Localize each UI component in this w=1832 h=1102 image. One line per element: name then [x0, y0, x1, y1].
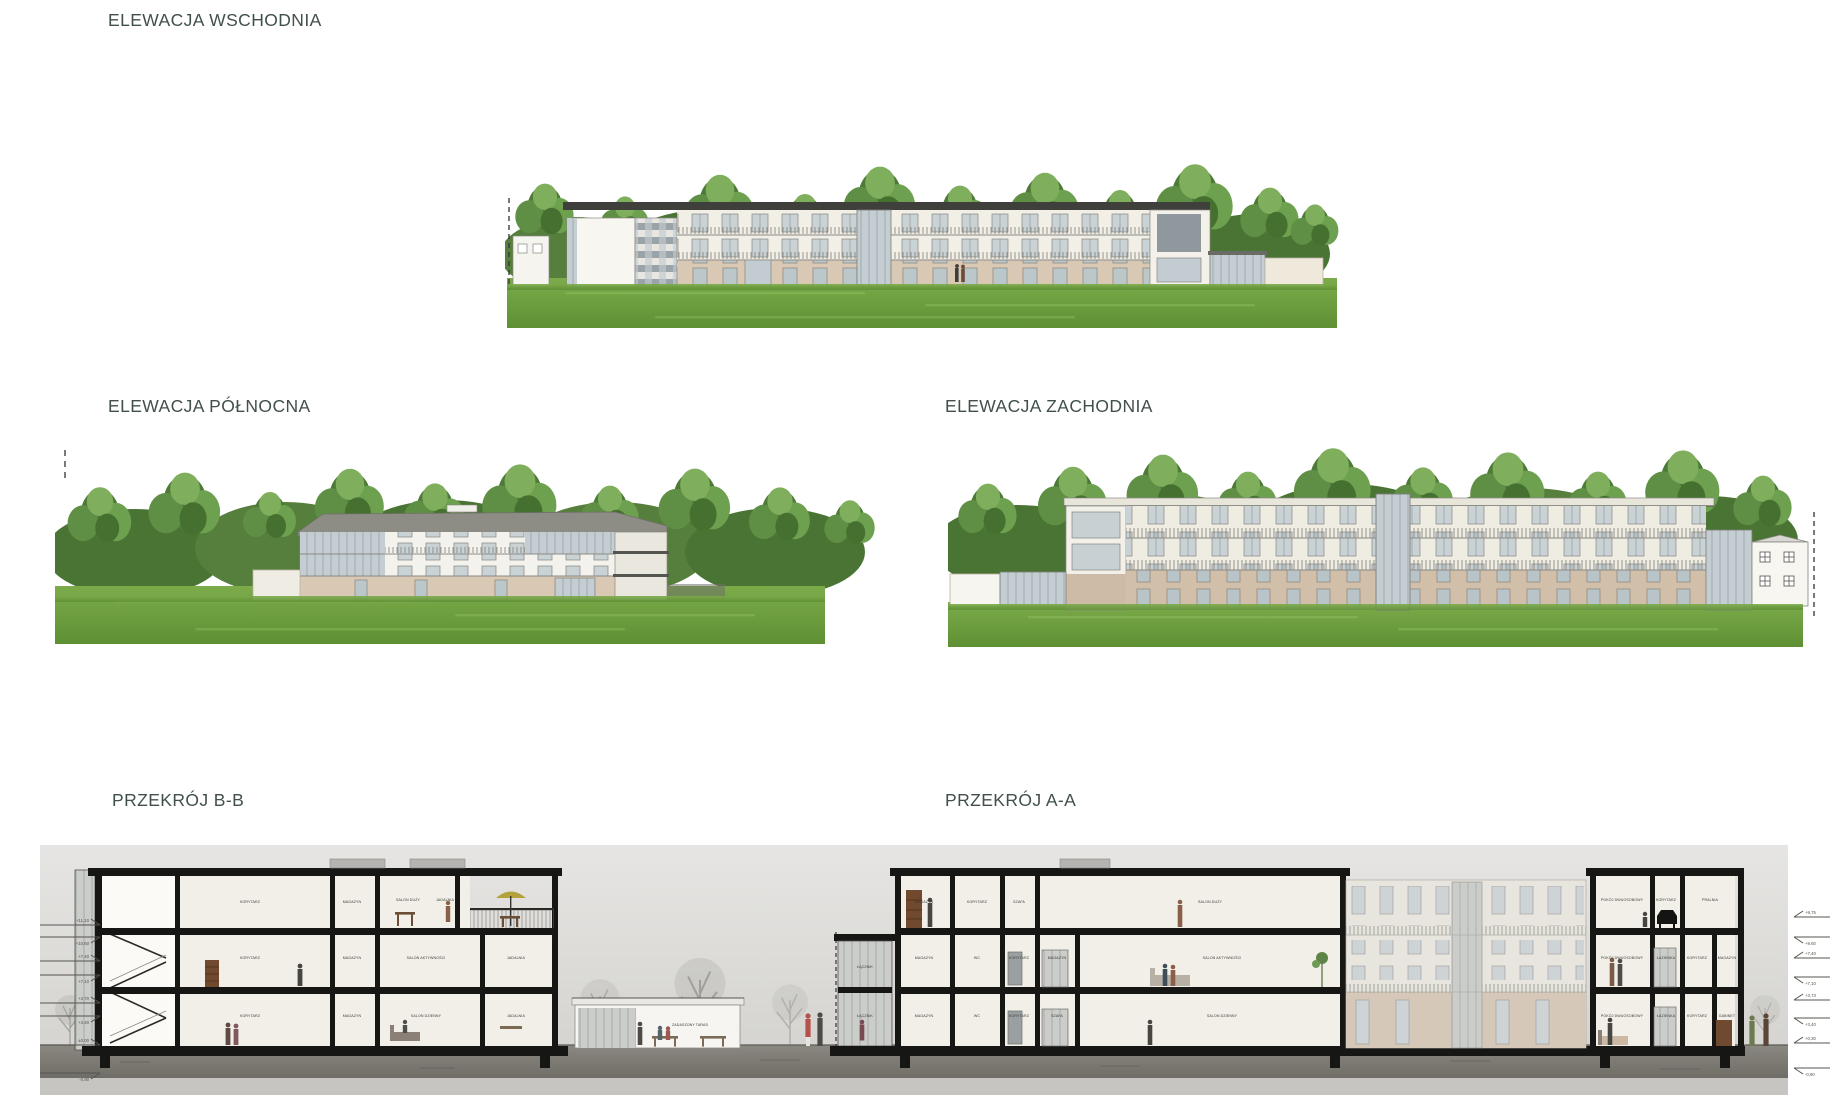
room-label: PRALNIA [1702, 898, 1719, 902]
room-label: SALON DUŻY [396, 897, 420, 902]
level-value: -0,90 [79, 1077, 89, 1082]
room-label: SALON DZIENNY [411, 1014, 442, 1018]
level-markers-right: +9,75 +9,60 +7,40 +7,10 +3,73 +3,40 +0,3… [1794, 910, 1830, 1077]
room-label: WC [974, 956, 980, 960]
room-label: KORYTARZ [1687, 956, 1708, 960]
room-label: KORYTARZ [240, 1014, 261, 1018]
room-label: KORYTARZ [1656, 898, 1677, 902]
room-label: SZAFA [1013, 900, 1025, 904]
room-label: MAGAZYN [915, 900, 934, 904]
level-value: +3,73 [1805, 993, 1816, 998]
room-label: ŁAZIENKA [1657, 1014, 1676, 1018]
building-west [948, 494, 1814, 616]
title-west-elevation: ELEWACJA ZACHODNIA [945, 396, 1153, 417]
title-east-elevation: ELEWACJA WSCHODNIA [108, 10, 322, 31]
glass-stair-tower [857, 210, 891, 286]
room-label: MAGAZYN [1718, 956, 1737, 960]
room-label: SALON AKTYWNOŚCI [1203, 955, 1242, 960]
sections-drawing: KORYTARZ MAGAZYN SALON DUŻY JADALNIA KOR… [0, 840, 1832, 1102]
connector-wing: ŁĄCZNIK ŁĄCZNIK [834, 934, 898, 1046]
presentation-board: ELEWACJA WSCHODNIA ELEWACJA PÓŁNOCNA ELE… [0, 0, 1832, 1102]
room-label: JADALNIA [507, 956, 525, 960]
room-label: GABINET [1719, 1014, 1736, 1018]
room-label: ŁAZIENKA [1657, 956, 1676, 960]
mosaic-glass-panel [635, 218, 677, 286]
section-aa: ŁĄCZNIK ŁĄCZNIK [805, 859, 1768, 1068]
room-label: MAGAZYN [343, 956, 362, 960]
level-value: +9,60 [1805, 941, 1816, 946]
level-value: +7,40 [1805, 951, 1816, 956]
level-value: +7,10 [1805, 981, 1816, 986]
title-section-aa: PRZEKRÓJ A-A [945, 790, 1076, 811]
room-label: ŁĄCZNIK [857, 965, 873, 969]
room-label: POKÓJ DWUOSOBOWY [1601, 955, 1644, 960]
level-value: +9,75 [1805, 910, 1816, 915]
room-label: KORYTARZ [1009, 956, 1030, 960]
room-label: KORYTARZ [1009, 1014, 1030, 1018]
north-elevation-drawing [55, 448, 890, 648]
room-label: MAGAZYN [343, 900, 362, 904]
room-label: POKÓJ DWUOSOBOWY [1601, 897, 1644, 902]
level-value: +10,60 [76, 941, 90, 946]
room-label: MAGAZYN [915, 1014, 934, 1018]
east-elevation-drawing [505, 160, 1340, 332]
room-label: KORYTARZ [240, 956, 261, 960]
annex-pavilion: ZADASZONY TARAS [572, 998, 744, 1048]
title-section-bb: PRZEKRÓJ B-B [112, 790, 244, 811]
level-value: +7,10 [78, 979, 89, 984]
roof-band [563, 202, 1210, 210]
room-label: MAGAZYN [915, 956, 934, 960]
room-label: SZAFA [1051, 1014, 1063, 1018]
level-value: +3,70 [78, 996, 89, 1001]
gable-block [1752, 535, 1808, 606]
room-label: KORYTARZ [240, 900, 261, 904]
glass-stair-tower [1376, 494, 1410, 610]
level-value: +7,40 [78, 954, 89, 959]
room-label: SALON AKTYWNOŚCI [407, 955, 446, 960]
room-label: WC [974, 1014, 980, 1018]
level-value: +3,40 [78, 1020, 89, 1025]
room-label: SALON DUŻY [1198, 899, 1222, 904]
room-label: MAGAZYN [343, 1014, 362, 1018]
level-value: ±0,00 [78, 1038, 89, 1043]
title-north-elevation: ELEWACJA PÓŁNOCNA [108, 396, 311, 417]
room-label: ZADASZONY TARAS [672, 1023, 709, 1027]
room-label: KORYTARZ [967, 900, 988, 904]
room-label: JADALNIA [507, 1014, 525, 1018]
level-value: +11,10 [76, 918, 90, 923]
room-label: POKÓJ DWUOSOBOWY [1601, 1013, 1644, 1018]
room-label: JADALNIA [436, 898, 454, 902]
courtyard-facade [1346, 880, 1586, 1048]
room-label: MAGAZYN [1048, 956, 1067, 960]
level-value: +0,30 [1805, 1036, 1816, 1041]
room-label: SALON DZIENNY [1207, 1014, 1238, 1018]
west-elevation-drawing [948, 432, 1823, 654]
room-label: KORYTARZ [1687, 1014, 1708, 1018]
level-value: -0,90 [1805, 1072, 1815, 1077]
level-value: +3,40 [1805, 1022, 1816, 1027]
room-label: ŁĄCZNIK [857, 1014, 873, 1018]
